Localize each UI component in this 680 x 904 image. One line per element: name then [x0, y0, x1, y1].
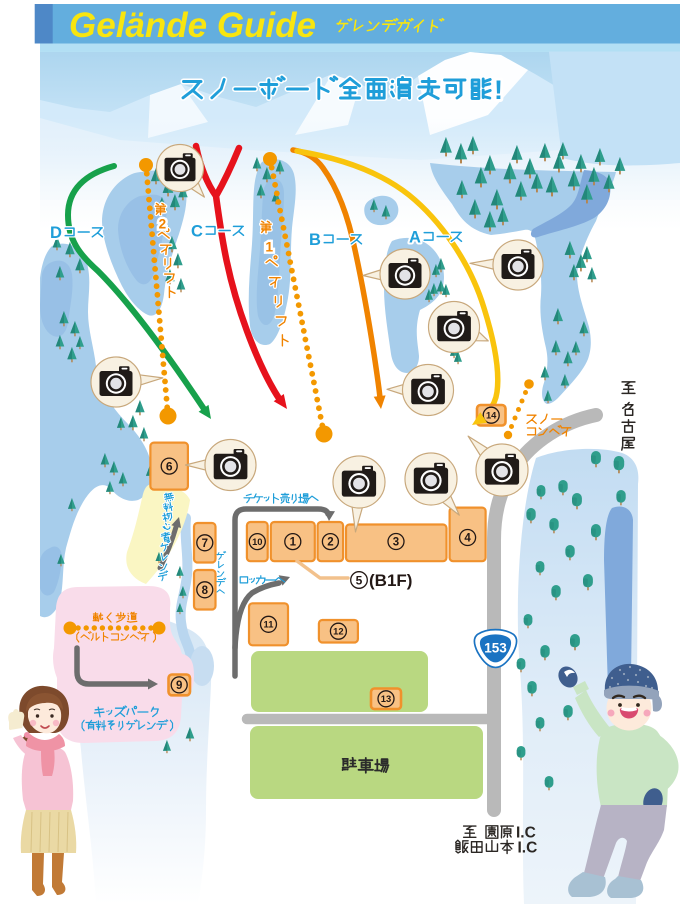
- svg-text:11: 11: [264, 619, 274, 630]
- svg-text:(B1F): (B1F): [369, 571, 412, 590]
- svg-text:C: C: [191, 223, 203, 241]
- svg-text:8: 8: [202, 585, 209, 597]
- svg-text:6: 6: [166, 459, 173, 473]
- svg-text:Gelände Guide: Gelände Guide: [69, 6, 316, 45]
- svg-text:4: 4: [464, 533, 471, 545]
- svg-text:153: 153: [484, 641, 507, 656]
- svg-text:3: 3: [393, 537, 399, 549]
- svg-text:A: A: [409, 229, 421, 247]
- svg-text:13: 13: [381, 693, 391, 704]
- svg-text:12: 12: [333, 626, 343, 637]
- svg-text:14: 14: [486, 410, 497, 421]
- svg-text:2: 2: [159, 216, 167, 231]
- svg-text:I.C: I.C: [518, 840, 538, 857]
- svg-text:!: !: [494, 75, 503, 105]
- svg-text:5: 5: [356, 573, 363, 587]
- svg-text:9: 9: [176, 680, 182, 692]
- svg-text:1: 1: [265, 239, 273, 255]
- svg-text:10: 10: [252, 536, 262, 547]
- svg-text:1: 1: [290, 537, 297, 549]
- svg-text:B: B: [309, 231, 321, 249]
- svg-text:D: D: [50, 224, 62, 242]
- svg-text:7: 7: [202, 538, 208, 550]
- svg-text:2: 2: [327, 537, 333, 549]
